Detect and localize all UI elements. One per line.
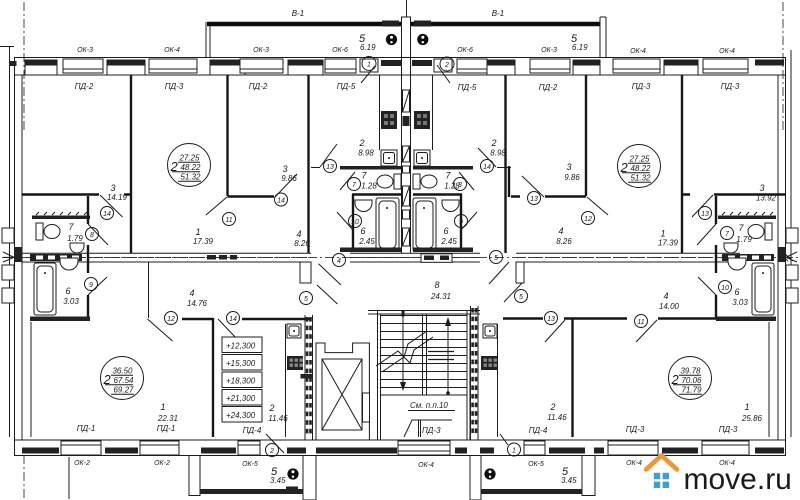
svg-text:1.79: 1.79 xyxy=(736,235,752,244)
svg-text:13.92: 13.92 xyxy=(756,194,777,203)
svg-text:3: 3 xyxy=(566,162,571,172)
svg-text:4: 4 xyxy=(558,226,563,236)
svg-text:1: 1 xyxy=(744,402,749,412)
svg-text:2: 2 xyxy=(490,138,496,148)
svg-text:14: 14 xyxy=(103,211,111,218)
svg-text:17.39: 17.39 xyxy=(193,237,214,246)
svg-text:27.25: 27.25 xyxy=(178,154,200,163)
svg-text:4: 4 xyxy=(189,288,194,298)
svg-text:ПД-3: ПД-3 xyxy=(422,426,441,435)
svg-text:1.28: 1.28 xyxy=(361,182,377,191)
svg-text:1: 1 xyxy=(195,227,200,237)
svg-text:12: 12 xyxy=(167,316,175,323)
svg-text:5: 5 xyxy=(494,255,498,262)
svg-text:3.45: 3.45 xyxy=(561,476,577,485)
svg-text:13: 13 xyxy=(701,211,709,218)
svg-text:ОК-6: ОК-6 xyxy=(332,47,348,54)
svg-text:ПД-2: ПД-2 xyxy=(539,83,558,92)
svg-text:48.22: 48.22 xyxy=(180,163,201,172)
svg-text:8.26: 8.26 xyxy=(556,237,572,246)
svg-text:9: 9 xyxy=(89,282,93,289)
svg-text:69.27: 69.27 xyxy=(113,386,134,395)
svg-text:22.31: 22.31 xyxy=(157,414,178,423)
svg-text:13: 13 xyxy=(326,164,334,171)
svg-text:51.32: 51.32 xyxy=(180,173,201,182)
svg-text:2: 2 xyxy=(268,403,274,413)
svg-text:+15,300: +15,300 xyxy=(226,359,256,368)
svg-text:ОК-3: ОК-3 xyxy=(541,47,557,54)
svg-text:В-1: В-1 xyxy=(292,9,304,18)
svg-text:9.86: 9.86 xyxy=(281,174,297,183)
svg-text:9.86: 9.86 xyxy=(564,173,580,182)
svg-text:1: 1 xyxy=(660,229,665,239)
svg-text:17.39: 17.39 xyxy=(658,239,679,248)
svg-text:move.ru: move.ru xyxy=(684,463,792,496)
svg-text:+12,300: +12,300 xyxy=(226,342,256,351)
svg-text:ОК-2: ОК-2 xyxy=(74,460,90,467)
svg-text:ПД-4: ПД-4 xyxy=(529,426,548,435)
svg-text:39.78: 39.78 xyxy=(680,367,701,376)
svg-text:ПД-1: ПД-1 xyxy=(157,424,176,433)
svg-text:ПД-5: ПД-5 xyxy=(337,82,356,91)
svg-text:24.31: 24.31 xyxy=(430,292,451,301)
svg-text:ОК-4: ОК-4 xyxy=(630,48,646,55)
svg-text:5: 5 xyxy=(304,296,308,303)
svg-text:6: 6 xyxy=(360,226,365,236)
svg-text:ОК-4: ОК-4 xyxy=(626,460,642,467)
svg-text:ОК-4: ОК-4 xyxy=(164,47,180,54)
svg-text:ОК-4: ОК-4 xyxy=(719,48,735,55)
svg-text:14: 14 xyxy=(229,316,237,323)
svg-text:1.28: 1.28 xyxy=(444,182,460,191)
svg-text:2: 2 xyxy=(549,402,555,412)
svg-text:14.76: 14.76 xyxy=(187,299,208,308)
svg-text:8.26: 8.26 xyxy=(294,239,310,248)
svg-text:67.54: 67.54 xyxy=(113,376,134,385)
svg-text:14.00: 14.00 xyxy=(659,302,680,311)
svg-text:14.19: 14.19 xyxy=(107,193,128,202)
svg-text:2: 2 xyxy=(269,448,274,455)
svg-text:ОК-2: ОК-2 xyxy=(154,460,170,467)
svg-text:ПД-3: ПД-3 xyxy=(165,82,184,91)
svg-text:ПД-2: ПД-2 xyxy=(75,82,94,91)
svg-text:2: 2 xyxy=(444,62,449,69)
svg-text:ОК-4: ОК-4 xyxy=(418,462,434,469)
svg-text:11: 11 xyxy=(225,217,232,224)
svg-text:2.45: 2.45 xyxy=(440,237,457,246)
svg-text:11: 11 xyxy=(637,319,644,326)
svg-text:4: 4 xyxy=(296,229,301,239)
svg-text:1.79: 1.79 xyxy=(67,234,83,243)
svg-text:3: 3 xyxy=(759,183,764,193)
svg-text:4: 4 xyxy=(663,291,668,301)
svg-text:+24,300: +24,300 xyxy=(226,411,256,420)
svg-text:6: 6 xyxy=(734,287,739,297)
svg-text:3.03: 3.03 xyxy=(63,297,79,306)
svg-text:9: 9 xyxy=(459,219,463,226)
svg-text:6.19: 6.19 xyxy=(572,43,588,52)
svg-text:36.50: 36.50 xyxy=(112,367,133,376)
svg-text:12: 12 xyxy=(584,216,592,223)
svg-text:70.06: 70.06 xyxy=(681,376,702,385)
svg-text:51.32: 51.32 xyxy=(630,174,651,183)
svg-text:6: 6 xyxy=(65,286,70,296)
svg-text:14: 14 xyxy=(483,164,491,171)
svg-text:В-1: В-1 xyxy=(492,9,504,18)
svg-text:ОК-3: ОК-3 xyxy=(77,47,93,54)
svg-text:14: 14 xyxy=(277,198,285,205)
svg-text:8: 8 xyxy=(434,280,439,290)
svg-text:5: 5 xyxy=(519,294,523,301)
svg-text:ПД-5: ПД-5 xyxy=(458,83,477,92)
svg-text:ПД-3: ПД-3 xyxy=(721,82,740,91)
svg-text:+21,300: +21,300 xyxy=(226,394,256,403)
svg-text:3: 3 xyxy=(110,183,115,193)
svg-text:1: 1 xyxy=(160,402,165,412)
svg-text:4: 4 xyxy=(337,258,341,265)
svg-text:25.86: 25.86 xyxy=(741,414,763,423)
svg-text:ПД-4: ПД-4 xyxy=(243,426,262,435)
svg-text:71.79: 71.79 xyxy=(681,386,702,395)
svg-text:ОК-3: ОК-3 xyxy=(253,47,269,54)
svg-text:+18,300: +18,300 xyxy=(226,377,256,386)
svg-text:ПД-1: ПД-1 xyxy=(77,424,96,433)
svg-text:13: 13 xyxy=(547,316,555,323)
svg-text:6.19: 6.19 xyxy=(360,43,376,52)
svg-text:ПД-3: ПД-3 xyxy=(626,425,645,434)
svg-text:8: 8 xyxy=(90,232,94,239)
svg-text:8.98: 8.98 xyxy=(490,149,506,158)
svg-text:2.45: 2.45 xyxy=(358,237,375,246)
svg-text:ОК-5: ОК-5 xyxy=(528,461,544,468)
svg-text:48.22: 48.22 xyxy=(630,164,651,173)
svg-text:ОК-6: ОК-6 xyxy=(457,47,473,54)
svg-text:11.46: 11.46 xyxy=(547,413,567,422)
svg-text:2: 2 xyxy=(358,138,364,148)
svg-text:ПД-3: ПД-3 xyxy=(719,425,738,434)
svg-text:3.45: 3.45 xyxy=(270,476,286,485)
svg-text:См. п.п.10: См. п.п.10 xyxy=(410,401,448,410)
svg-text:1: 1 xyxy=(367,62,371,69)
svg-text:8.98: 8.98 xyxy=(358,149,374,158)
svg-text:10: 10 xyxy=(721,285,729,292)
svg-text:3: 3 xyxy=(282,164,287,174)
svg-text:13: 13 xyxy=(530,196,538,203)
svg-text:6: 6 xyxy=(443,226,448,236)
svg-text:27.25: 27.25 xyxy=(628,155,650,164)
svg-text:ОК-5: ОК-5 xyxy=(242,461,258,468)
svg-text:ПД-3: ПД-3 xyxy=(632,82,651,91)
svg-text:10: 10 xyxy=(351,219,359,226)
svg-text:ПД-2: ПД-2 xyxy=(249,82,268,91)
svg-text:11.46: 11.46 xyxy=(268,414,288,423)
svg-text:1: 1 xyxy=(512,448,516,455)
svg-text:3.03: 3.03 xyxy=(732,298,748,307)
